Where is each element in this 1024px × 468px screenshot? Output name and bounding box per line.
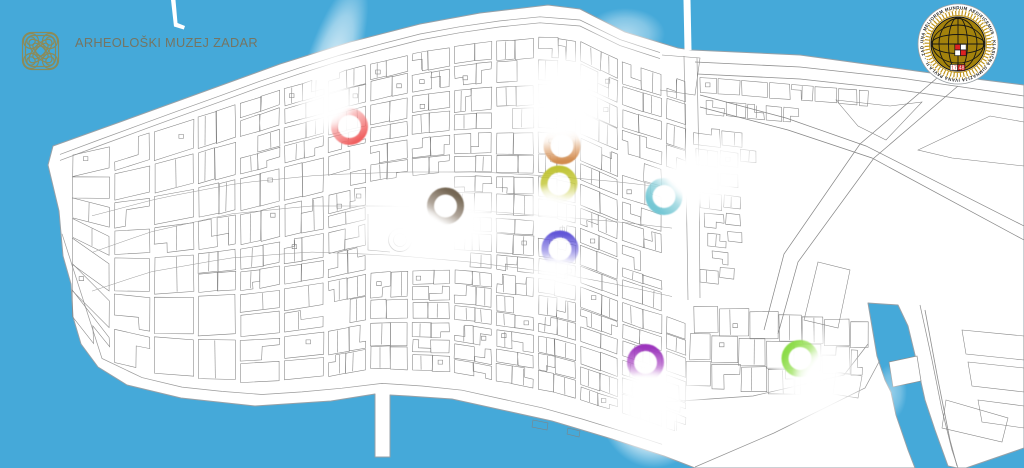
svg-text:ARHEOLOŠKI MUZEJ ZADAR: ARHEOLOŠKI MUZEJ ZADAR xyxy=(75,35,258,50)
svg-text:17: 17 xyxy=(951,66,957,72)
svg-text:48: 48 xyxy=(959,66,965,72)
